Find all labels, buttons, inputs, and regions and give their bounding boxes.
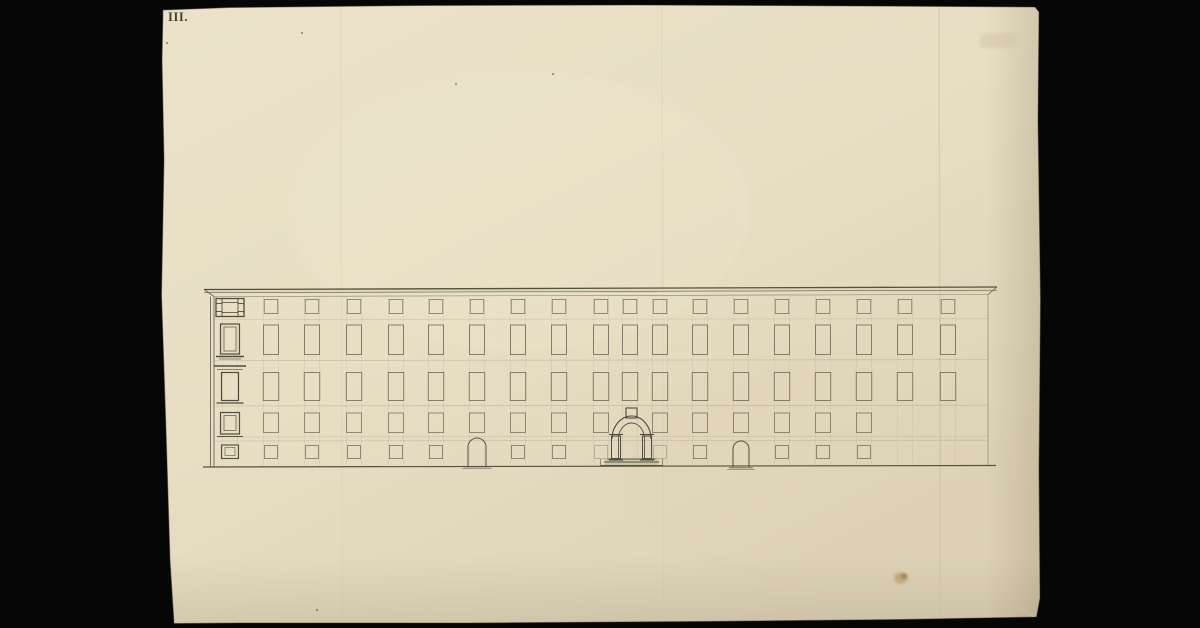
paper-speck [316,609,318,611]
right-edge-shadow [985,0,1045,628]
paper-speck [455,83,457,85]
bottom-edge-shadow [155,555,1045,628]
paper-speck [166,42,168,44]
paper-speck [301,32,303,34]
embossed-stamp [980,33,1016,48]
paper-dark-patch [620,350,1020,590]
stain [901,573,908,579]
sheet-number-inscription: III. [168,10,188,24]
paper-light-patch [290,70,750,350]
paper-speck [552,73,554,75]
scanned-drawing: III. [0,0,1200,628]
scan-viewport: III. [0,0,1200,628]
